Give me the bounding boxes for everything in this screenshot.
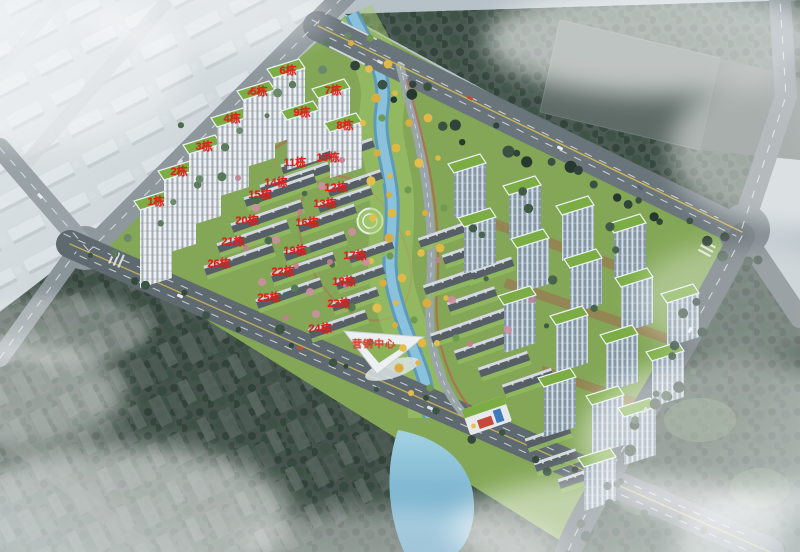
aerial-rendering: 1栋2栋3栋4栋5栋6栋7栋8栋9栋10栋11栋12栋13栋14栋15栋16栋1…	[0, 0, 800, 552]
vignette	[0, 0, 800, 552]
site-plan-scene	[0, 0, 800, 552]
